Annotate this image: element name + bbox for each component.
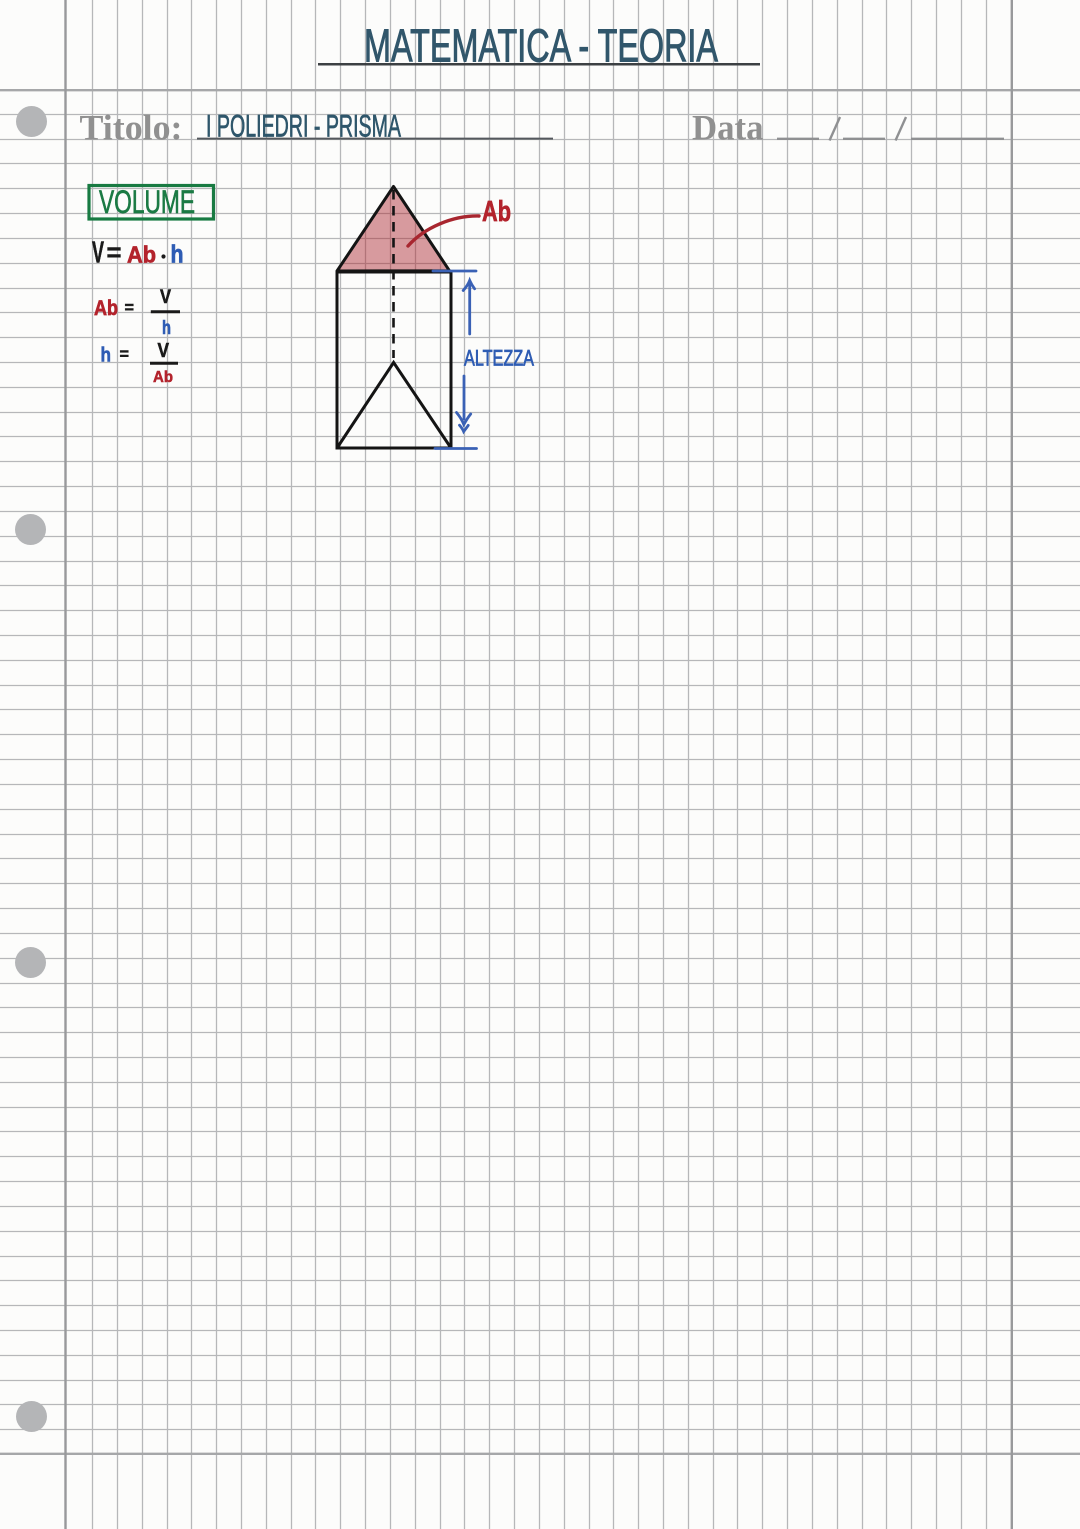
svg-text:=: = [107,237,122,267]
svg-text:=: = [120,345,130,364]
svg-text:V: V [160,286,171,308]
svg-text:=: = [125,298,135,317]
svg-text:Ab: Ab [94,297,118,320]
svg-text:h: h [162,318,171,339]
svg-text:Ab: Ab [127,242,156,268]
svg-text:ALTEZZA: ALTEZZA [464,346,534,371]
svg-text:V: V [92,235,104,270]
svg-text:h: h [101,344,112,367]
svg-text:Ab: Ab [153,369,173,386]
svg-text:VOLUME: VOLUME [99,184,195,220]
svg-text:Titolo:: Titolo: [80,108,183,148]
svg-text:h: h [171,241,184,269]
svg-text:Data: Data [692,108,764,148]
svg-text:Ab: Ab [482,196,511,228]
svg-text:V: V [158,340,170,362]
